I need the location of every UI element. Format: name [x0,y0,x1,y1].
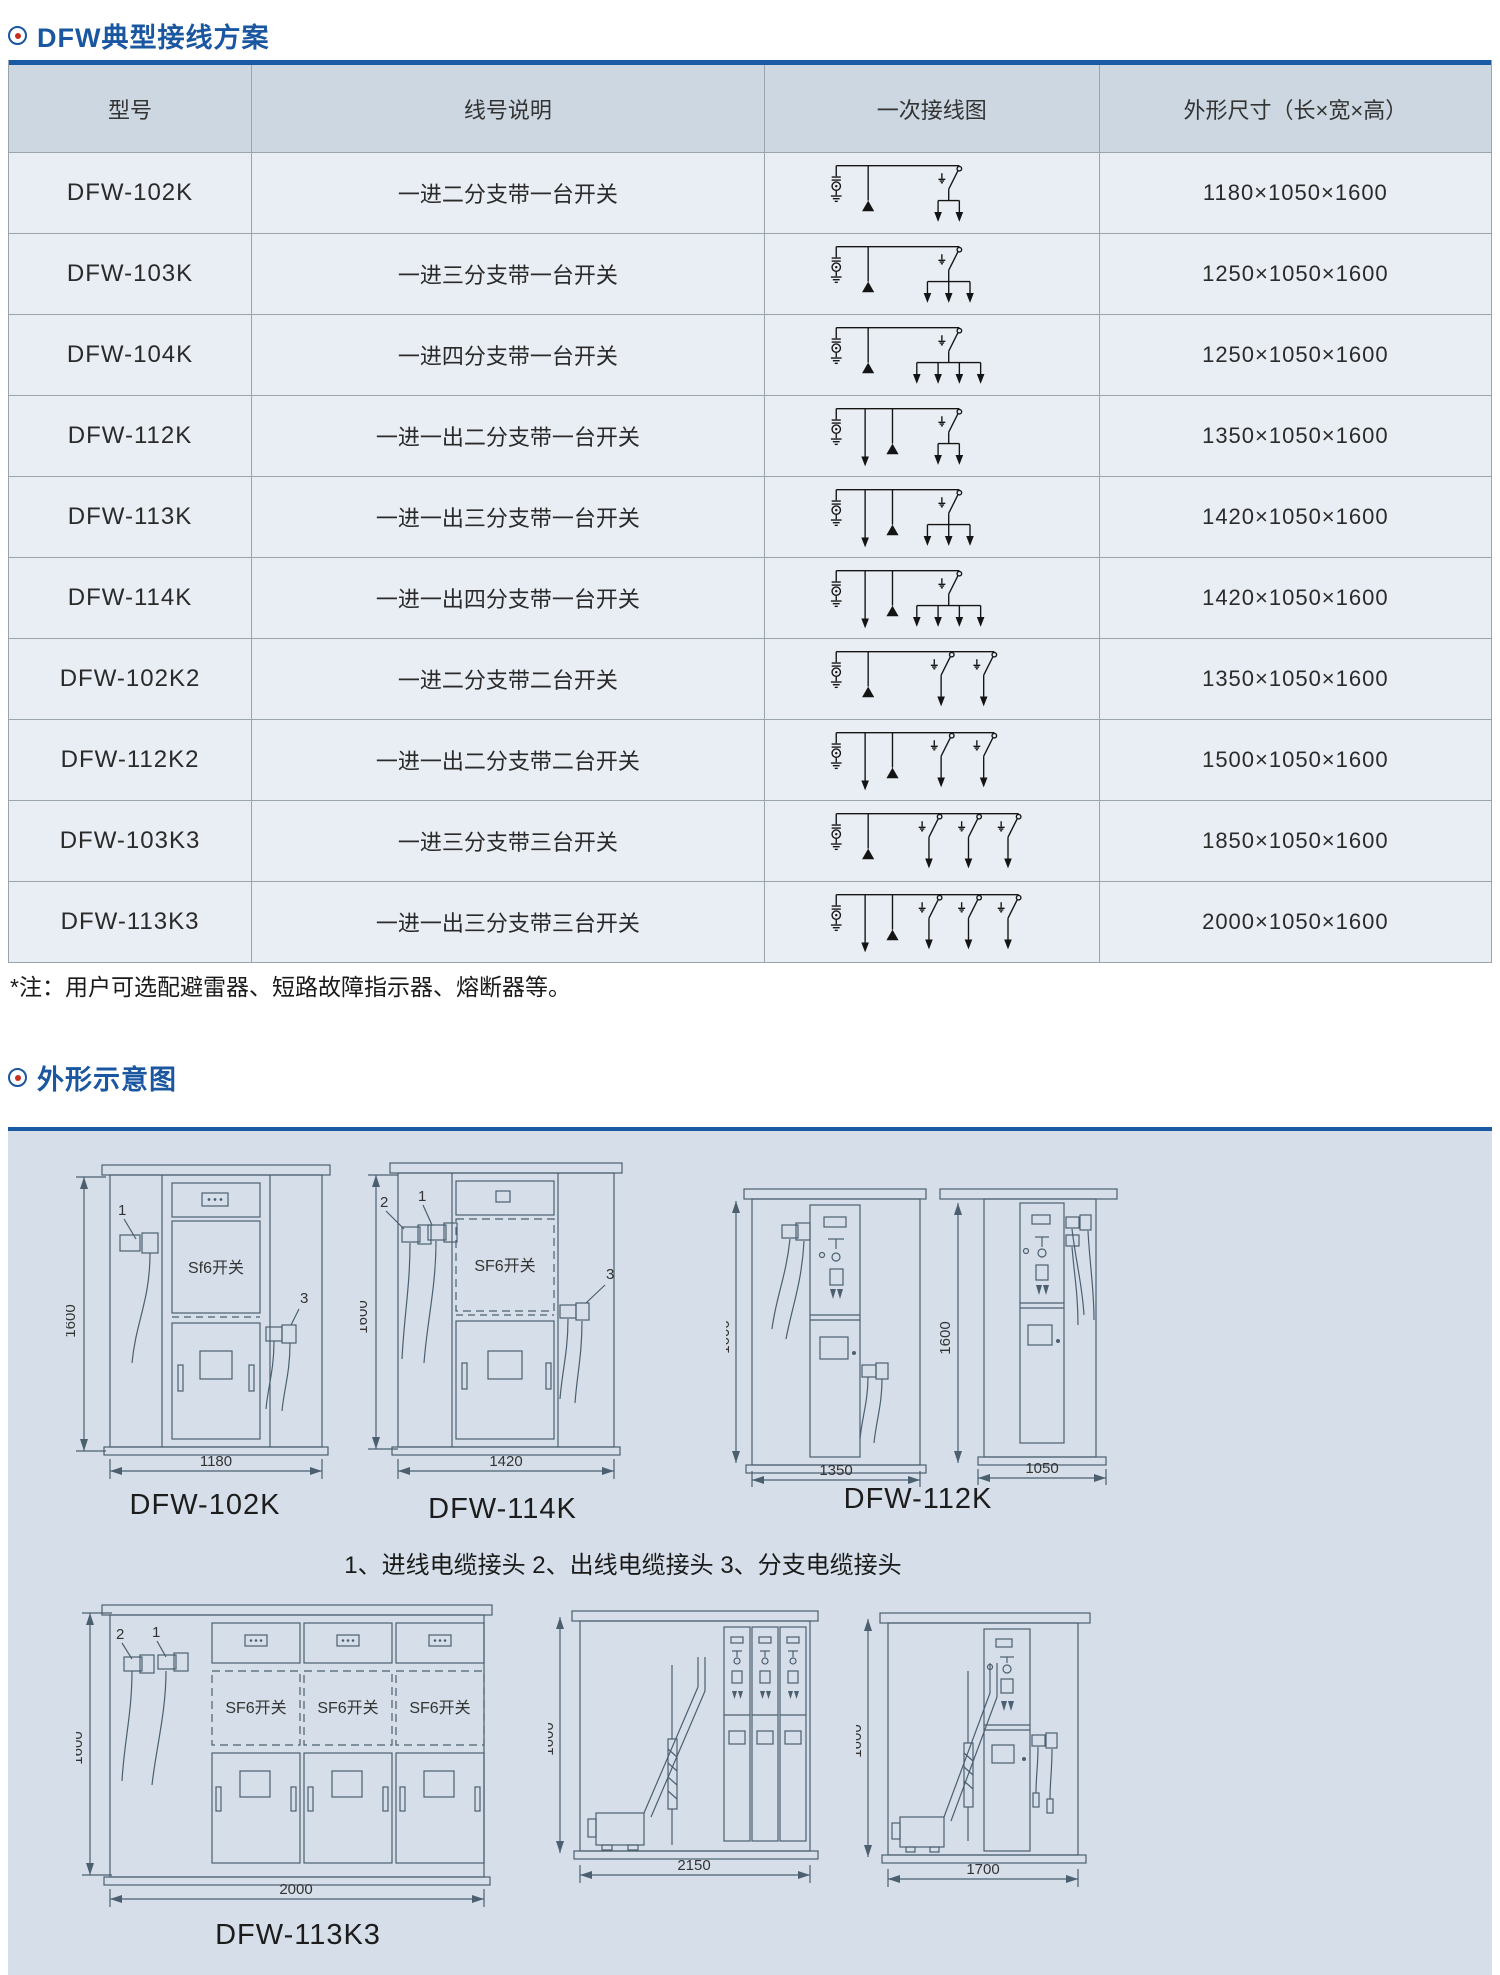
dim-label-width: 1350 [819,1462,852,1479]
model-cell: DFW-104K [9,315,252,395]
table-row: DFW-103K 一进三分支带一台开关 1250×1050×1600 [9,234,1491,315]
cabinet-drawing-dfw-112k-front: 1600 1350 [726,1177,931,1487]
section2-header: 外形示意图 [8,1058,177,1097]
switch-compartment-label: SF6开关 [474,1257,535,1275]
diagram-cell [765,396,1100,476]
wire-desc-cell: 一进一出四分支带一台开关 [252,558,765,638]
model-cell: DFW-102K [9,153,252,233]
diagram-cell [765,153,1100,233]
switch-column-1 [724,1627,750,1841]
switch-compartment-label: Sf6开关 [188,1259,244,1277]
callout-outgoing: 2 [380,1194,388,1211]
switch-compartment-label: SF6开关 [409,1699,470,1717]
table-row: DFW-113K3 一进一出三分支带三台开关 2000×1050×1600 [9,882,1491,963]
table-row: DFW-113K 一进一出三分支带一台开关 1420×1050×1600 [9,477,1491,558]
table-row: DFW-112K2 一进一出二分支带二台开关 1500×1050×1600 [9,720,1491,801]
header-wire-desc: 线号说明 [252,65,765,152]
cabinet-drawing-side-2150: 1600 [548,1599,828,1899]
wire-desc-cell: 一进一出三分支带一台开关 [252,477,765,557]
one-line-diagram [818,398,1046,474]
switch-bay-2: SF6开关 [304,1623,392,1863]
one-line-diagram [818,560,1046,636]
model-cell: DFW-114K [9,558,252,638]
switch-bay-3: SF6开关 [396,1623,484,1863]
model-cell: DFW-113K3 [9,882,252,962]
table-row: DFW-114K 一进一出四分支带一台开关 1420×1050×1600 [9,558,1491,639]
one-line-diagram [818,803,1046,879]
one-line-diagram [818,722,1046,798]
wire-desc-cell: 一进二分支带二台开关 [252,639,765,719]
model-cell: DFW-112K2 [9,720,252,800]
callout-incoming: 1 [152,1624,160,1641]
dim-label-width: 2150 [677,1857,710,1874]
switch-compartment-label: SF6开关 [225,1699,286,1717]
dim-label-width: 1050 [1025,1460,1058,1477]
section-bullet-icon [8,26,27,45]
model-cell: DFW-103K [9,234,252,314]
dim-label-width: 1180 [200,1453,232,1470]
dim-label-height: 1600 [76,1731,86,1764]
dimensions-cell: 1850×1050×1600 [1100,801,1491,881]
cabinet-drawing-side-1700: 1600 1700 [856,1601,1106,1901]
drawing-caption: DFW-114K [360,1493,645,1526]
dimensions-cell: 1420×1050×1600 [1100,477,1491,557]
dim-label-width: 1700 [966,1861,999,1878]
wire-desc-cell: 一进一出三分支带三台开关 [252,882,765,962]
wire-desc-cell: 一进一出二分支带二台开关 [252,720,765,800]
switch-compartment-label: SF6开关 [317,1699,378,1717]
table-row: DFW-112K 一进一出二分支带一台开关 1350×1050×1600 [9,396,1491,477]
diagram-cell [765,882,1100,962]
dim-label-height: 1600 [856,1724,865,1757]
diagram-cell [765,720,1100,800]
dim-label-height: 1600 [726,1320,733,1353]
table-note: *注：用户可选配避雷器、短路故障指示器、熔断器等。 [10,968,571,1002]
section-bullet-icon [8,1068,27,1087]
wire-desc-cell: 一进一出二分支带一台开关 [252,396,765,476]
diagram-cell [765,234,1100,314]
wire-desc-cell: 一进二分支带一台开关 [252,153,765,233]
diagram-cell [765,315,1100,395]
connector-legend: 1、进线电缆接头 2、出线电缆接头 3、分支电缆接头 [8,1545,1238,1580]
cabinet-drawing-dfw-102k: 1600 Sf6开关 1 3 1180 [66,1151,344,1486]
catalog-page: DFW典型接线方案 型号 线号说明 一次接线图 外形尺寸（长×宽×高） DFW-… [0,0,1500,1975]
model-cell: DFW-103K3 [9,801,252,881]
dim-label-height: 1600 [360,1300,371,1333]
one-line-diagram [818,236,1046,312]
dim-label-width: 2000 [279,1881,312,1898]
header-oneline-diagram: 一次接线图 [765,65,1100,152]
one-line-diagram [818,479,1046,555]
dim-label-height: 1600 [66,1304,79,1337]
one-line-diagram [818,155,1046,231]
dimensions-cell: 1180×1050×1600 [1100,153,1491,233]
cabinet-drawing-dfw-113k3: 1600 2 1 SF6开关 SF6开关 [76,1593,516,1915]
switch-bay-1: SF6开关 [212,1623,300,1863]
outline-panel: 1600 Sf6开关 1 3 1180 DFW-102K [8,1127,1492,1975]
section2-title: 外形示意图 [37,1058,177,1097]
wire-desc-cell: 一进四分支带一台开关 [252,315,765,395]
header-dimensions: 外形尺寸（长×宽×高） [1100,65,1491,152]
one-line-diagram [818,641,1046,717]
cabinet-drawing-dfw-114k: 1600 SF6开关 2 1 3 1420 [360,1147,645,1487]
diagram-cell [765,558,1100,638]
table-row: DFW-104K 一进四分支带一台开关 1250×1050×1600 [9,315,1491,396]
callout-branch: 3 [606,1266,614,1283]
switch-column-3 [780,1627,806,1841]
diagram-cell [765,801,1100,881]
model-cell: DFW-113K [9,477,252,557]
dimensions-cell: 1350×1050×1600 [1100,396,1491,476]
wire-desc-cell: 一进三分支带一台开关 [252,234,765,314]
dim-label-width: 1420 [489,1453,522,1470]
dimensions-cell: 1250×1050×1600 [1100,234,1491,314]
wire-desc-cell: 一进三分支带三台开关 [252,801,765,881]
one-line-diagram [818,317,1046,393]
model-cell: DFW-112K [9,396,252,476]
callout-incoming: 1 [118,1202,126,1219]
section1-title: DFW典型接线方案 [37,16,269,55]
model-cell: DFW-102K2 [9,639,252,719]
diagram-cell [765,477,1100,557]
drawing-caption: DFW-113K3 [128,1919,468,1952]
callout-outgoing: 2 [116,1626,124,1643]
section1-header: DFW典型接线方案 [8,16,269,55]
table-row: DFW-103K3 一进三分支带三台开关 1850×1050×1600 [9,801,1491,882]
one-line-diagram [818,884,1046,960]
diagram-cell [765,639,1100,719]
table-row: DFW-102K 一进二分支带一台开关 1180×1050×1600 [9,153,1491,234]
table-header-row: 型号 线号说明 一次接线图 外形尺寸（长×宽×高） [9,65,1491,153]
dim-label-height: 1600 [548,1722,557,1755]
dimensions-cell: 2000×1050×1600 [1100,882,1491,962]
table-body: DFW-102K 一进二分支带一台开关 1180×1050×1600 DFW-1… [9,153,1491,963]
dimensions-cell: 1420×1050×1600 [1100,558,1491,638]
callout-branch: 3 [300,1290,308,1307]
callout-incoming: 1 [418,1188,426,1205]
header-model: 型号 [9,65,252,152]
dimensions-cell: 1350×1050×1600 [1100,639,1491,719]
dim-label-height: 1600 [937,1321,954,1354]
wiring-scheme-table: 型号 线号说明 一次接线图 外形尺寸（长×宽×高） DFW-102K 一进二分支… [8,60,1492,963]
cabinet-drawing-dfw-112k-side: 1600 1050 [936,1173,1121,1493]
dimensions-cell: 1500×1050×1600 [1100,720,1491,800]
dimensions-cell: 1250×1050×1600 [1100,315,1491,395]
table-row: DFW-102K2 一进二分支带二台开关 1350×1050×1600 [9,639,1491,720]
drawing-caption: DFW-102K [66,1489,344,1522]
switch-column-2 [752,1627,778,1841]
